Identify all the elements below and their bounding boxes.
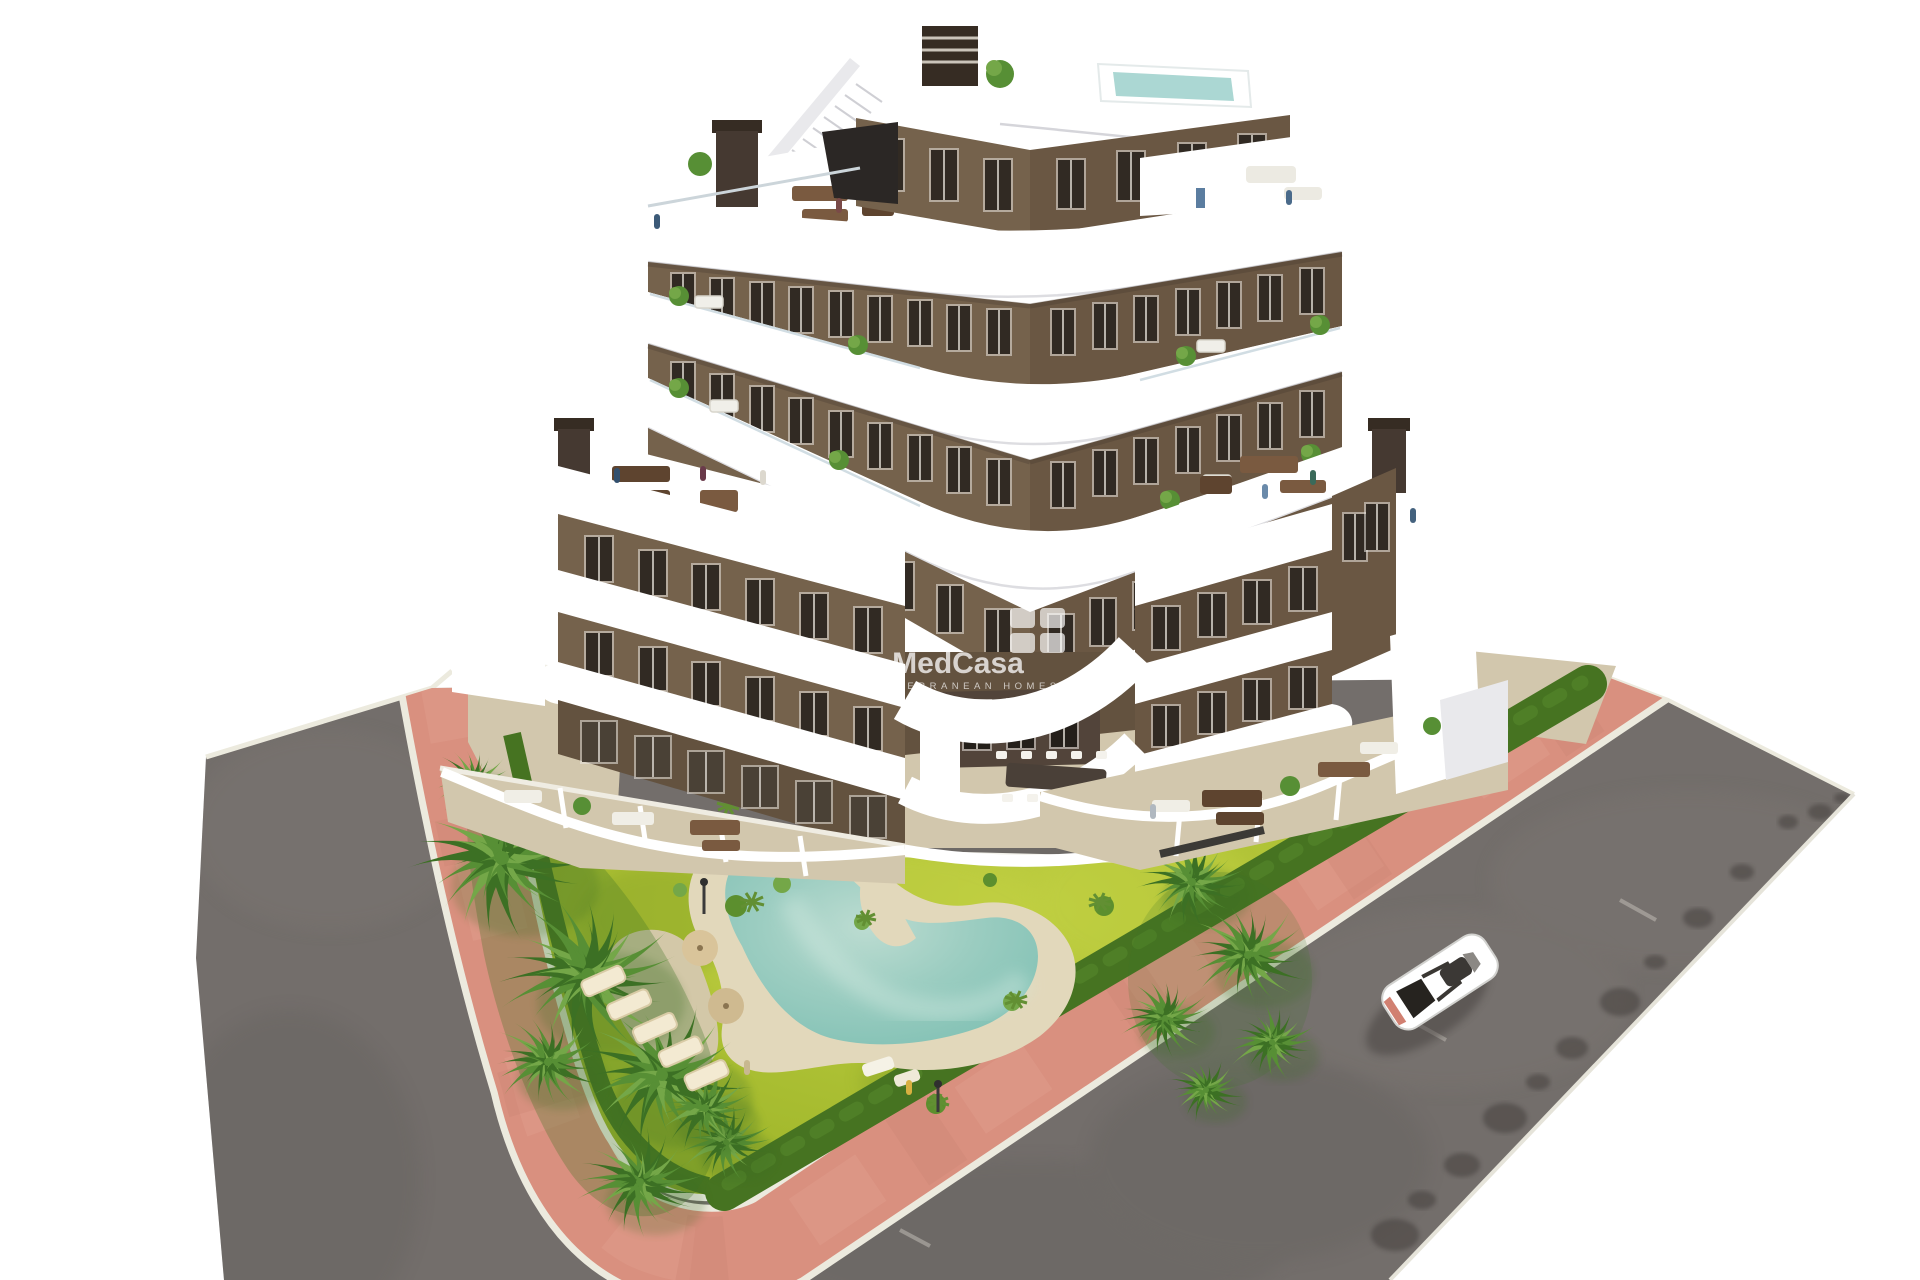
svg-text:MEDITERRANEAN HOMES: MEDITERRANEAN HOMES [855,681,1060,692]
svg-text:MedCasa: MedCasa [892,647,1024,680]
